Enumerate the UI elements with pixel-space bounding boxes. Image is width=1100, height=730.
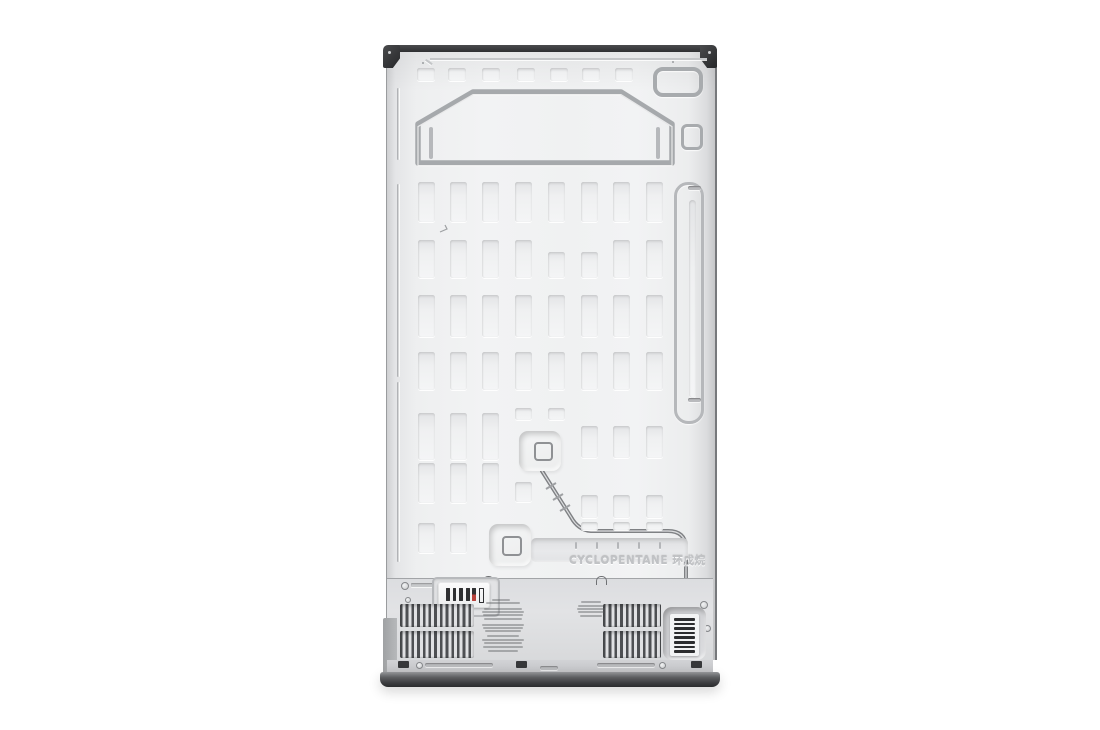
- emboss-slot: [646, 522, 663, 530]
- faux-text-line: [578, 611, 604, 613]
- left-rib: [397, 382, 400, 562]
- emboss-slot: [613, 426, 630, 458]
- right-vent-upper: [603, 604, 661, 627]
- emboss-slot-top: [550, 68, 568, 81]
- faux-text-line: [482, 611, 524, 613]
- base-slot: [597, 663, 655, 667]
- faux-text-line: [488, 650, 518, 652]
- wire-clip: [596, 576, 607, 585]
- channel-tick: [575, 542, 577, 549]
- emboss-slot: [418, 352, 435, 390]
- base-bracket: [516, 661, 527, 668]
- channel-tick: [596, 542, 598, 549]
- faux-text-line: [482, 624, 524, 626]
- faux-text-line: [485, 630, 521, 632]
- emboss-slot: [581, 352, 598, 390]
- label-bar-outline: [479, 588, 484, 603]
- emboss-slot-top: [517, 68, 535, 81]
- faux-text-line: [577, 608, 605, 610]
- emboss-slot: [646, 182, 663, 222]
- faux-text-line: [581, 601, 601, 603]
- faux-text-line: [483, 627, 523, 629]
- emboss-slot: [646, 495, 663, 518]
- left-rib: [397, 88, 400, 160]
- emboss-slot: [581, 295, 598, 337]
- emboss-slot: [515, 482, 532, 502]
- emboss-slot: [482, 463, 499, 503]
- channel-tick: [659, 542, 661, 549]
- emboss-slot: [482, 240, 499, 278]
- emboss-slot: [450, 413, 467, 460]
- faux-text-line: [484, 618, 522, 620]
- faux-text-line: [578, 605, 604, 607]
- faux-text-line: [492, 599, 510, 601]
- screw-icon: [416, 662, 423, 669]
- product-photo-stage: CYCLOPENTANE 环戊烷: [0, 0, 1100, 730]
- emboss-slot: [646, 295, 663, 337]
- lower-junction-port: [502, 536, 522, 556]
- base-slot: [540, 666, 558, 670]
- cyclopentane-embossed-text: CYCLOPENTANE 环戊烷: [569, 553, 706, 568]
- base-bracket: [398, 661, 409, 668]
- barcode-bar: [674, 646, 695, 649]
- top-trim-bar: [388, 45, 712, 52]
- top-seam-line: [430, 58, 707, 60]
- emboss-slot: [613, 240, 630, 278]
- emboss-slot: [646, 352, 663, 390]
- emboss-slot: [418, 295, 435, 337]
- emboss-slot: [418, 523, 435, 553]
- barcode-bar: [674, 632, 695, 635]
- label-bar: [459, 588, 463, 601]
- emboss-slot: [646, 426, 663, 458]
- emboss-slot: [581, 252, 598, 278]
- screw-icon: [401, 582, 409, 590]
- emboss-slot: [515, 182, 532, 222]
- barcode-bar: [674, 618, 695, 621]
- label-bar: [466, 588, 470, 601]
- emboss-slot: [548, 252, 565, 278]
- screw-icon: [659, 662, 666, 669]
- barcode-bar: [674, 627, 695, 630]
- emboss-slot: [418, 182, 435, 222]
- emboss-slot: [418, 413, 435, 460]
- right-stamp-square: [681, 124, 703, 150]
- left-vent-upper: [400, 604, 474, 627]
- top-right-stamp-rect: [653, 67, 703, 97]
- emboss-slot: [450, 523, 467, 553]
- right-vent-lower: [603, 631, 661, 658]
- emboss-slot: [581, 182, 598, 222]
- barcode-bar: [674, 641, 695, 644]
- left-rib: [397, 184, 400, 377]
- cap-screw-icon: [708, 51, 711, 54]
- emboss-slot: [581, 495, 598, 518]
- emboss-slot: [581, 522, 598, 530]
- emboss-slot: [548, 182, 565, 222]
- faux-text-line: [482, 639, 524, 641]
- base-bracket: [691, 661, 702, 668]
- emboss-slot: [418, 240, 435, 278]
- emboss-slot: [482, 295, 499, 337]
- emboss-slot: [613, 352, 630, 390]
- emboss-slot: [450, 182, 467, 222]
- faux-text-line: [487, 635, 519, 637]
- screw-icon: [405, 597, 411, 603]
- emboss-slot: [450, 295, 467, 337]
- base-slot: [425, 663, 493, 667]
- cap-screw-icon: [388, 51, 391, 54]
- faux-text-line: [580, 615, 602, 617]
- emboss-slot: [581, 426, 598, 458]
- barcode-bar: [674, 636, 695, 639]
- refrigerator-back-view: CYCLOPENTANE 环戊烷: [385, 45, 715, 687]
- right-channel-dash: [688, 398, 701, 402]
- emboss-slot: [515, 352, 532, 390]
- faux-text-line: [484, 608, 522, 610]
- emboss-slot: [515, 240, 532, 278]
- emboss-slot: [548, 352, 565, 390]
- emboss-slot: [613, 182, 630, 222]
- spot-dot: [672, 61, 674, 63]
- faux-text-line: [486, 602, 520, 604]
- emboss-slot: [515, 295, 532, 337]
- spot-dot: [422, 62, 424, 64]
- right-channel-dash: [688, 186, 701, 190]
- label-bar: [453, 588, 457, 601]
- barcode-bar: [674, 650, 695, 653]
- emboss-slot: [613, 295, 630, 337]
- channel-tick: [617, 542, 619, 549]
- right-channel-slot: [689, 200, 696, 398]
- emboss-slot: [515, 408, 532, 420]
- emboss-slot: [548, 408, 565, 420]
- emboss-slot-top: [417, 68, 435, 81]
- emboss-slot: [613, 495, 630, 518]
- emboss-slot: [482, 413, 499, 460]
- upper-junction-port: [534, 442, 553, 461]
- barcode-bar: [674, 623, 695, 626]
- label-bar-red: [472, 588, 476, 601]
- emboss-slot: [450, 463, 467, 503]
- emboss-slot-top: [615, 68, 633, 81]
- emboss-slot-top: [482, 68, 500, 81]
- emboss-slot-top: [582, 68, 600, 81]
- faux-text-line: [483, 614, 523, 616]
- base-kick-plate: [380, 672, 720, 687]
- label-bar: [446, 588, 450, 601]
- left-vent-lower: [400, 631, 474, 658]
- emboss-slot: [482, 182, 499, 222]
- emboss-slot: [482, 352, 499, 390]
- emboss-slot: [646, 240, 663, 278]
- emboss-slot: [613, 522, 630, 530]
- emboss-slot: [450, 352, 467, 390]
- channel-tick: [638, 542, 640, 549]
- faux-text-line: [484, 642, 522, 644]
- emboss-slot: [450, 240, 467, 278]
- emboss-slot: [548, 295, 565, 337]
- emboss-slot-top: [448, 68, 466, 81]
- faux-text-line: [483, 646, 523, 648]
- emboss-slot: [418, 463, 435, 503]
